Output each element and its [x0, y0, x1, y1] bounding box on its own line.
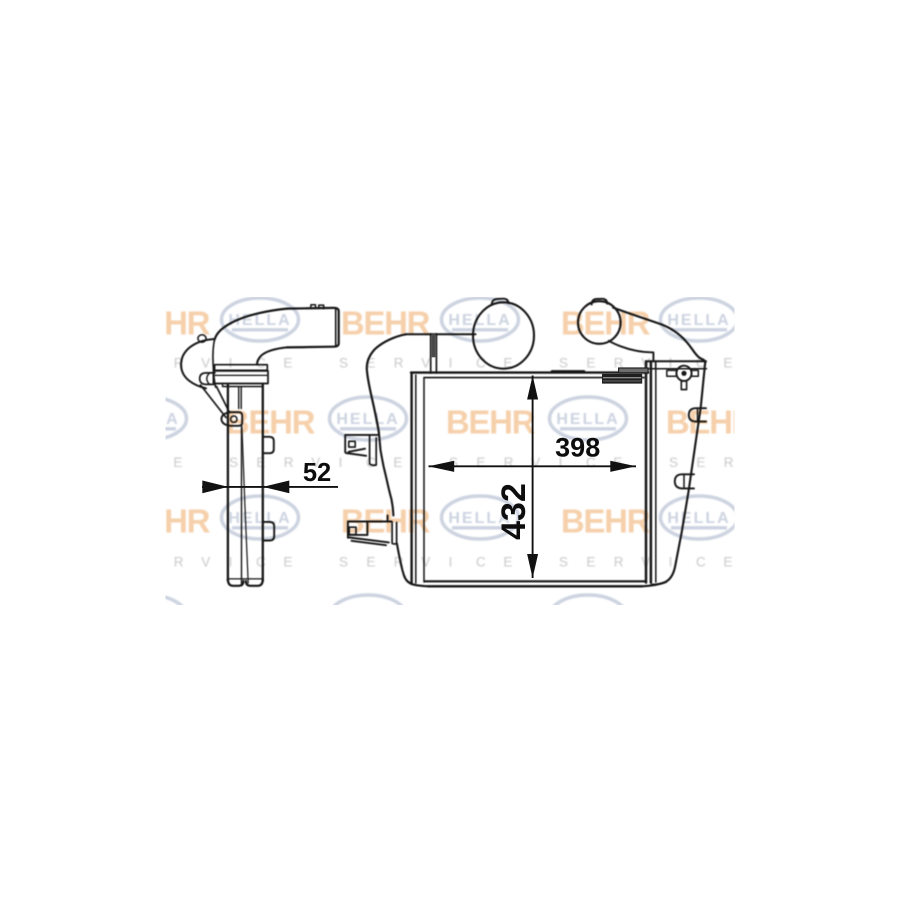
svg-text:432: 432 — [495, 483, 533, 540]
svg-text:398: 398 — [555, 433, 600, 463]
svg-text:52: 52 — [303, 459, 331, 487]
